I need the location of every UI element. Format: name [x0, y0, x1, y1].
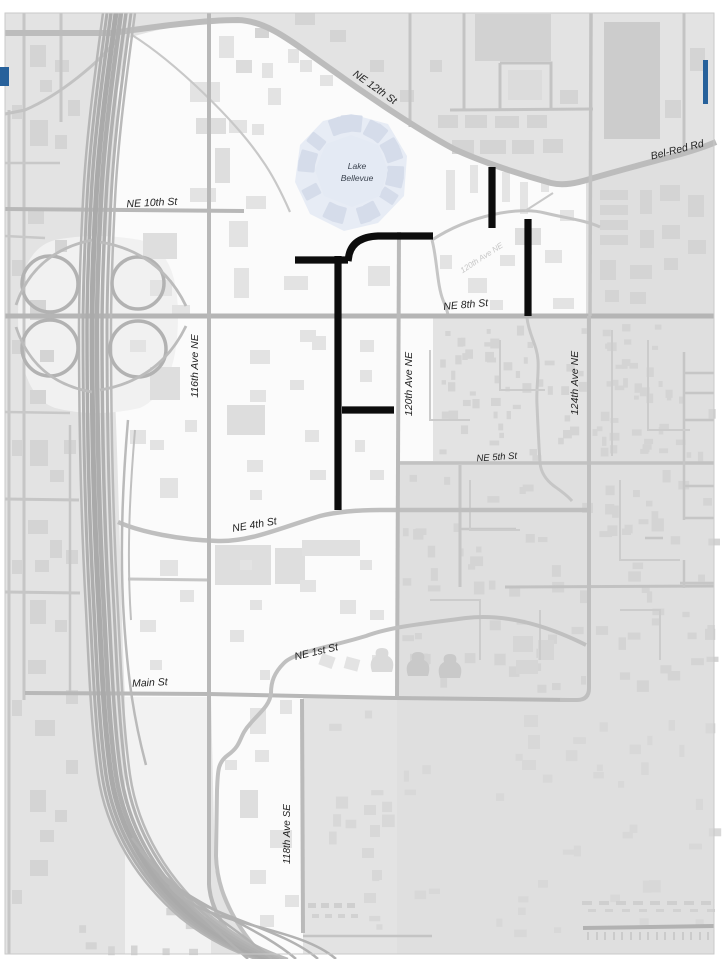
svg-text:116th Ave NE: 116th Ave NE: [189, 333, 201, 397]
svg-text:118th Ave SE: 118th Ave SE: [282, 804, 293, 864]
svg-text:120th Ave NE: 120th Ave NE: [403, 351, 415, 416]
svg-text:Lake: Lake: [348, 161, 367, 171]
svg-text:124th Ave NE: 124th Ave NE: [569, 350, 581, 415]
svg-text:Main St: Main St: [132, 676, 169, 690]
svg-text:Bellevue: Bellevue: [341, 173, 374, 183]
